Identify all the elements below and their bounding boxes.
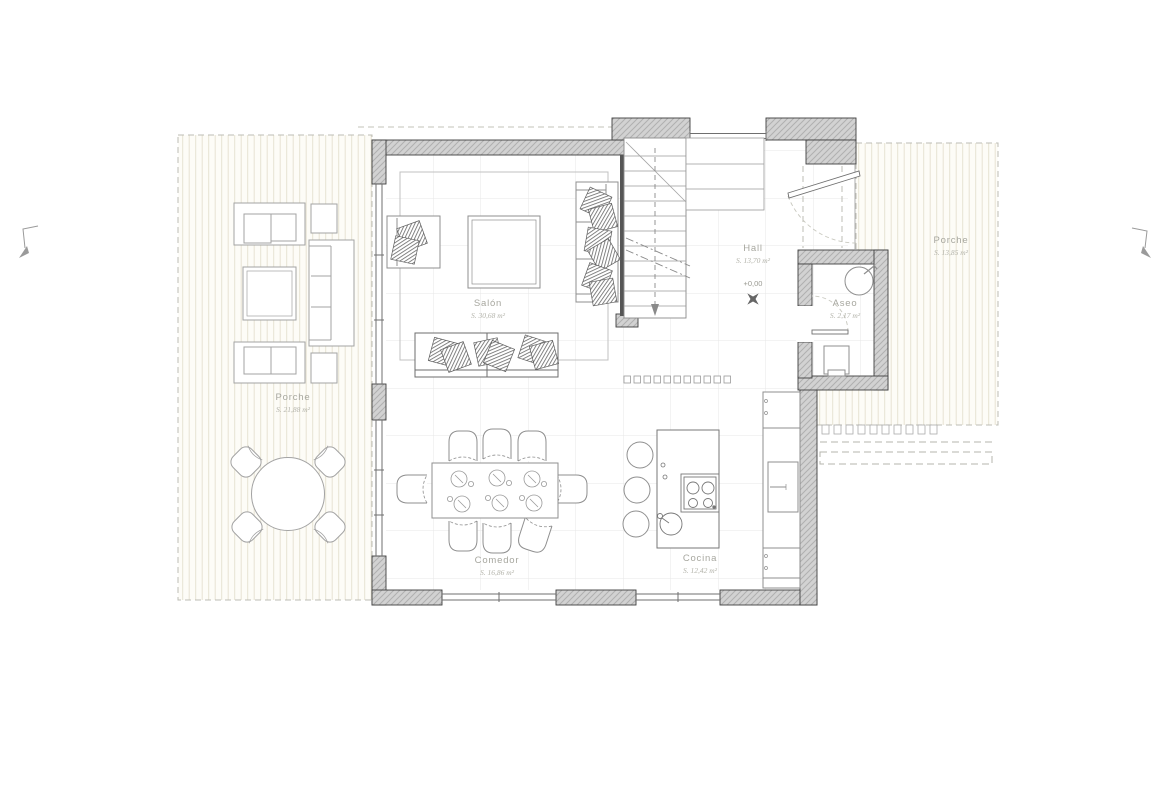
floor-plan-drawing: Salón S. 30,68 m² Comedor S. 16,86 m² Co… [0,0,1170,785]
hall-level-value: +0,00 [744,279,763,288]
porch-steps [822,425,937,434]
window-bottom-comedor [442,592,556,602]
floor-plan-page: Salón S. 30,68 m² Comedor S. 16,86 m² Co… [0,0,1170,785]
right-corner-arrow-icon [1132,228,1151,258]
wall-stair-partition [620,155,624,316]
porche-left-label: Porche [276,392,311,403]
wall-bottom-2 [556,590,636,605]
left-porch [178,135,372,600]
salon-label: Salón [474,298,502,309]
dining-chair [449,431,477,461]
dining-chair [483,429,511,459]
left-corner-arrow-icon [19,226,38,258]
aseo-area: S. 2,17 m² [830,311,861,320]
dining-chair [557,475,587,503]
porche-left-area: S. 21,88 m² [276,405,311,414]
hall-label: Hall [743,243,763,254]
wall-east-kitchen [800,388,817,605]
porch-side-table-bottom [311,353,337,383]
aseo-label: Aseo [833,298,858,309]
window-left-upper [374,184,384,384]
porch-side-table-top [311,204,337,233]
wall-entry-step [806,140,856,164]
wall-aseo-right [874,250,888,390]
dining-table [432,463,558,518]
wall-left-pier-mid [372,384,386,420]
dining-chair [397,475,427,503]
window-bottom-cocina [636,592,720,602]
porch-sofa-bottom [234,342,305,383]
porche-right-label: Porche [934,235,969,246]
salon-area: S. 30,68 m² [471,311,506,320]
sofa-cushion [589,278,617,306]
porch-round-table [252,458,325,531]
wall-aseo-left-upper [798,264,812,306]
kitchen-island [657,430,719,548]
porch-sofa-right [309,240,354,346]
comedor-label: Comedor [475,555,520,566]
window-left-lower [374,420,384,556]
armchair-cushion [391,236,419,264]
wall-stair-top [612,118,690,140]
wall-bottom-1 [372,590,442,605]
dining-chair [449,521,477,551]
porch-step-outline [820,452,992,464]
porch-sofa-top [234,203,305,245]
kitchen-stool [624,477,650,503]
hall-area: S. 13,70 m² [736,256,771,265]
kitchen-stool [623,511,649,537]
wall-left-pier-top [372,140,386,184]
porche-right-area: S. 13,85 m² [934,248,969,257]
floor-grille [624,376,731,383]
comedor-area: S. 16,86 m² [480,568,515,577]
aseo-washbasin [845,267,873,295]
dining-chair [518,431,546,461]
kitchen-counter-east [763,392,800,588]
porch-coffee-table [243,267,296,320]
wall-entry-top [766,118,856,140]
aseo-toilet [824,346,849,376]
aseo-door-opening [796,306,814,342]
aseo-door-leaf [812,330,848,334]
dining-chair [483,523,511,553]
wall-top-salon [372,140,632,155]
cocina-area: S. 12,42 m² [683,566,718,575]
kitchen-stool [627,442,653,468]
wall-aseo-left-lower [798,342,812,378]
salon-coffee-table [468,216,540,288]
cocina-label: Cocina [683,553,717,564]
